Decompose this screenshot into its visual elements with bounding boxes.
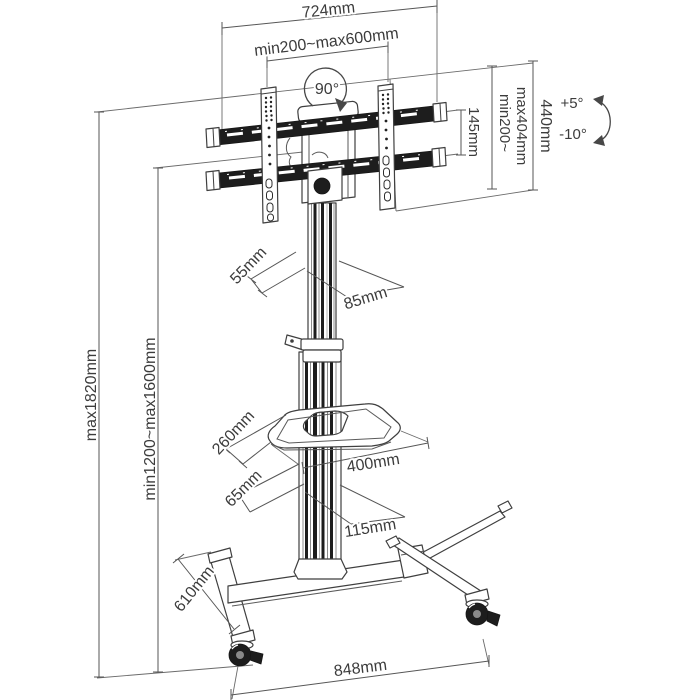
upper-column	[308, 203, 336, 353]
label-screen-height-range: min1200~max1600mm	[142, 337, 159, 500]
left-caster-brake	[250, 651, 263, 664]
label-rail-spacing: 145mm	[465, 107, 482, 157]
left-caster	[229, 630, 263, 666]
vesa-strip-right	[378, 84, 395, 210]
lower-column	[294, 352, 347, 579]
right-leg-back	[416, 511, 505, 563]
label-tilt-up: +5°	[560, 95, 583, 112]
label-column-width: 85mm	[342, 284, 389, 313]
dim-rail-spacing	[456, 110, 466, 155]
label-vesa-width-range: min200~max600mm	[253, 25, 399, 60]
swivel-pivot	[308, 167, 342, 204]
diagram-drawing: 724mm min200~max600mm 90° 145mm min200~ …	[0, 0, 700, 700]
label-base-column-width: 115mm	[343, 516, 397, 541]
right-caster-brake	[487, 611, 500, 626]
label-shelf-width: 400mm	[346, 451, 401, 476]
tilt-arrow-icon	[593, 95, 610, 146]
label-max-height: max1820mm	[83, 349, 100, 441]
pivot-circle	[314, 178, 330, 194]
label-base-leg-depth: 610mm	[171, 563, 218, 615]
height-adjust-collar	[285, 335, 343, 362]
right-caster	[465, 589, 500, 626]
label-vesa-height-range-line1: min200~	[496, 94, 513, 152]
label-tilt-down: -10°	[559, 126, 587, 143]
label-top-width: 724mm	[301, 0, 356, 22]
label-bracket-height: 440mm	[537, 99, 554, 152]
label-column-depth: 55mm	[227, 244, 270, 288]
label-shelf-depth: 260mm	[209, 408, 258, 459]
label-base-column-depth: 65mm	[222, 467, 265, 510]
column-foot-plate	[294, 559, 347, 579]
vesa-strip-left	[261, 87, 278, 223]
label-vesa-height-range-line2: max404mm	[513, 87, 530, 165]
label-base-width: 848mm	[333, 657, 388, 680]
dim-vesa-height-range	[487, 66, 497, 189]
label-swivel-angle: 90°	[315, 81, 339, 98]
tv-cart-dimension-diagram: 724mm min200~max600mm 90° 145mm min200~ …	[0, 0, 700, 700]
